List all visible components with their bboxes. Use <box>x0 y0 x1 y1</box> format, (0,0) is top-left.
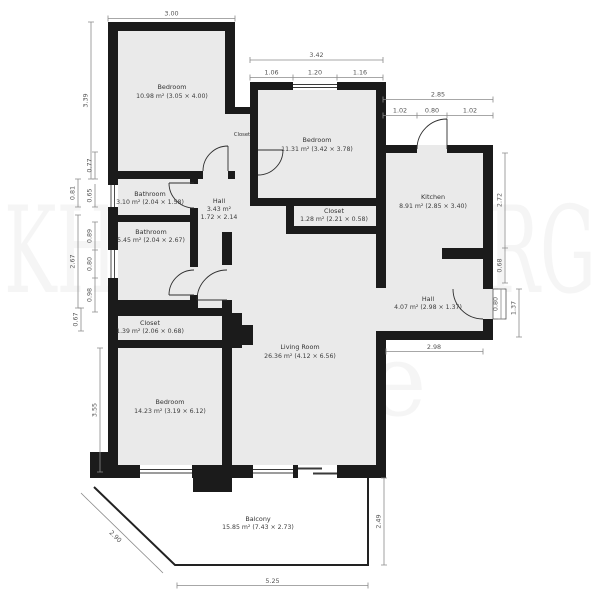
room-bedroom1-area: 10.98 m² (3.05 × 4.00) <box>136 93 208 100</box>
dim-b2-seg1: 1.06 <box>264 69 278 77</box>
room-hall-center-dims: 1.72 × 2.14 <box>201 214 238 221</box>
room-hall-entry-area: 4.07 m² (2.98 × 1.37) <box>394 304 462 311</box>
dim-hall-width: 2.98 <box>427 343 441 351</box>
window-living-bottom <box>253 465 293 478</box>
dim-left-6: 0.80 <box>86 257 94 271</box>
room-bedroom3-area: 14.23 m² (3.19 × 6.12) <box>134 408 206 415</box>
room-closet-center-area: 1.28 m² (2.21 × 0.58) <box>300 216 368 223</box>
room-bedroom2-area: 11.31 m² (3.42 × 3.78) <box>281 146 353 153</box>
room-closet-top-name: Closet <box>234 132 250 138</box>
room-bathroom1-area: 3.10 m² (2.04 × 1.58) <box>116 199 184 206</box>
room-bathroom2-name: Bathroom <box>135 228 166 236</box>
dim-kitchen-seg2: 0.80 <box>425 107 439 115</box>
room-hall-center-area: 3.43 m² <box>207 206 232 213</box>
dim-left-8: 0.67 <box>72 312 80 326</box>
dim-kitchen-total: 2.85 <box>431 91 445 99</box>
room-closet-center-name: Closet <box>324 207 344 215</box>
window-bedroom2-top <box>293 82 337 90</box>
room-bathroom1-name: Bathroom <box>134 190 165 198</box>
dim-b2-seg2: 1.20 <box>308 69 322 77</box>
floor-plan-canvas: KHARTOUBERG Estate <box>0 0 600 600</box>
dim-b2-seg3: 1.16 <box>353 69 367 77</box>
dim-b1-top: 3.00 <box>164 10 178 18</box>
dim-entry-depth: 1.37 <box>510 301 518 315</box>
room-living-name: Living Room <box>280 343 319 351</box>
dim-left-4: 0.89 <box>86 229 94 243</box>
room-bedroom3-name: Bedroom <box>156 398 185 406</box>
window-bathroom2-left <box>108 250 118 278</box>
dim-b1-left: 3.39 <box>82 93 90 107</box>
room-bedroom1-name: Bedroom <box>158 83 187 91</box>
dim-balcony-slant: 2.90 <box>107 529 123 545</box>
dim-b2-total: 3.42 <box>309 51 323 59</box>
dim-left-9: 3.55 <box>91 403 99 417</box>
window-bedroom3-bottom <box>140 465 192 478</box>
room-hall-center-name: Hall <box>213 197 225 205</box>
sliding-door-balcony <box>298 465 337 478</box>
dim-right-step: 0.68 <box>496 258 504 272</box>
dim-kitchen-seg1: 1.02 <box>393 107 407 115</box>
room-kitchen-name: Kitchen <box>421 193 445 201</box>
dim-left-5: 2.67 <box>69 254 77 268</box>
dim-left-3: 0.65 <box>86 188 94 202</box>
room-balcony-area: 15.85 m² (7.43 × 2.73) <box>222 524 294 531</box>
room-balcony-name: Balcony <box>245 515 271 523</box>
dim-kitchen-seg3: 1.02 <box>463 107 477 115</box>
dim-balcony-depth: 2.49 <box>375 514 383 528</box>
room-living-area: 26.36 m² (4.12 × 6.56) <box>264 353 336 360</box>
room-bathroom2-area: 5.45 m² (2.04 × 2.67) <box>117 237 185 244</box>
room-closet-lower-name: Closet <box>140 319 160 327</box>
dim-balcony-width: 5.25 <box>265 577 279 585</box>
dim-left-7: 0.98 <box>86 288 94 302</box>
room-hall-entry-name: Hall <box>422 295 434 303</box>
floor-plan: KHARTOUBERG Estate <box>0 0 600 600</box>
room-closet-lower-area: 1.39 m² (2.06 × 0.68) <box>116 328 184 335</box>
dim-kitchen-right: 2.72 <box>496 193 504 207</box>
dim-left-1: 0.77 <box>86 158 94 172</box>
dim-entry-door: 0.80 <box>492 297 500 311</box>
door-kitchen <box>417 119 447 149</box>
room-kitchen-area: 8.91 m² (2.85 × 3.40) <box>399 203 467 210</box>
room-bedroom2-name: Bedroom <box>303 136 332 144</box>
dim-left-2: 0.81 <box>69 186 77 200</box>
